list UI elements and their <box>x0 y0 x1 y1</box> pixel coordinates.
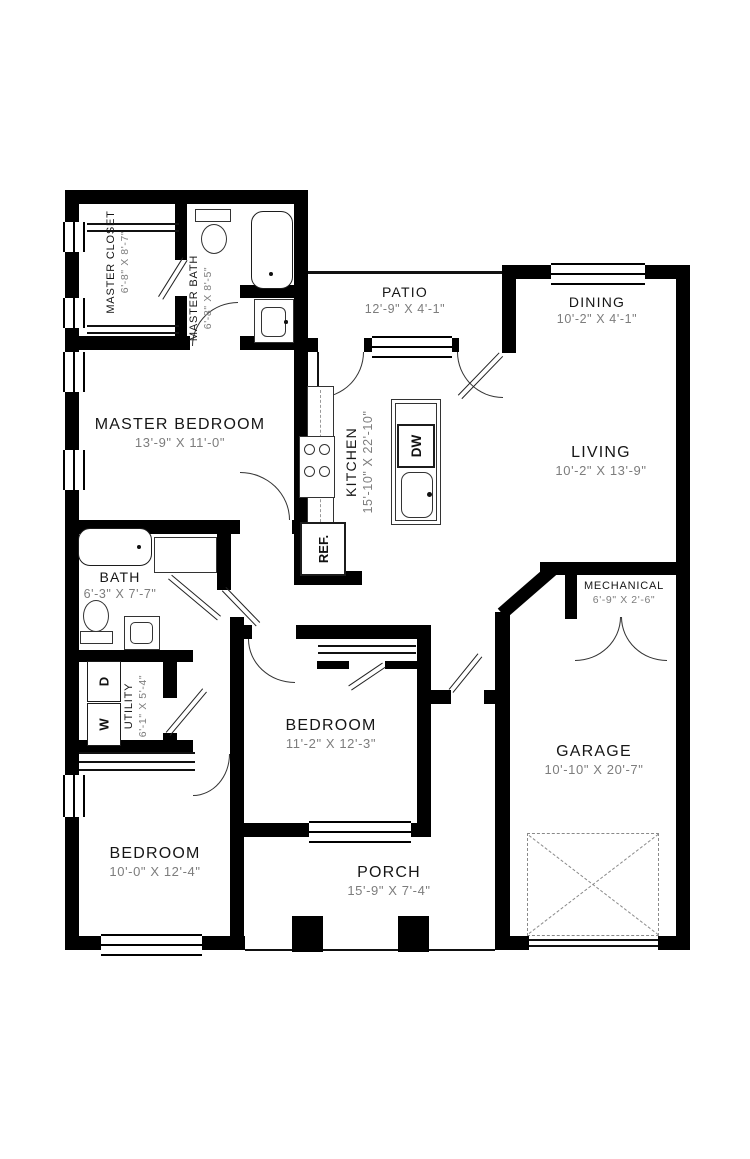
sink-basin <box>130 622 153 644</box>
wall <box>244 625 252 639</box>
door-leaf <box>158 257 187 299</box>
door-arc <box>575 617 621 661</box>
porch-post <box>398 916 429 952</box>
door-arc <box>240 472 290 520</box>
wall <box>230 617 244 950</box>
wall <box>65 190 308 204</box>
door-leaf <box>168 575 221 621</box>
wall <box>676 265 690 950</box>
room-label-patio: PATIO12'-9" X 4'-1" <box>335 284 475 317</box>
closet-shelf <box>79 752 195 754</box>
dishwasher-label: DW <box>407 429 425 463</box>
window <box>101 934 202 956</box>
sink-basin <box>261 307 286 337</box>
window <box>63 352 85 392</box>
tub-drain <box>137 545 141 549</box>
wall <box>540 562 676 575</box>
room-label-living: LIVING10'-2" X 13'-9" <box>516 443 686 479</box>
closet-shelf <box>318 645 416 647</box>
faucet <box>284 320 288 324</box>
room-label-porch: PORCH15'-9" X 7'-4" <box>309 863 469 899</box>
room-label-utility: UTILITY6'-1" X 5'-4" <box>123 664 153 748</box>
wall <box>294 190 308 348</box>
dryer-label: D <box>97 672 112 692</box>
wall <box>230 823 311 837</box>
room-label-garage: GARAGE10'-10" X 20'-7" <box>509 742 679 778</box>
sliding-door <box>372 336 452 358</box>
stove-burner <box>304 444 315 455</box>
window <box>63 775 85 817</box>
room-label-mechanical: MECHANICAL6'-9" X 2'-6" <box>564 580 684 607</box>
wall <box>658 936 690 950</box>
room-label-kitchen: KITCHEN15'-10" X 22'-10" <box>343 392 381 532</box>
wall <box>217 534 231 590</box>
wall <box>175 296 187 336</box>
room-label-bedroom-3: BEDROOM10'-0" X 12'-4" <box>75 844 235 880</box>
closet-shelf <box>79 769 195 771</box>
room-label-master-bedroom: MASTER BEDROOM13'-9" X 11'-0" <box>80 415 280 451</box>
tub-drain <box>269 272 273 276</box>
closet-shelf <box>79 761 195 763</box>
wall <box>417 625 431 837</box>
wall <box>317 661 349 669</box>
window <box>63 298 85 328</box>
wall <box>417 690 451 704</box>
wall <box>484 690 495 704</box>
window <box>551 263 645 285</box>
window <box>309 821 411 843</box>
refrigerator-label: REF. <box>314 527 332 571</box>
door-arc <box>193 754 230 796</box>
stove-burner <box>319 444 330 455</box>
room-label-master-bath: MASTER BATH6'-8" X 8'-5" <box>188 242 222 354</box>
wall <box>175 204 187 260</box>
toilet-tank <box>195 209 231 222</box>
toilet-tank <box>80 631 113 644</box>
wall <box>65 336 190 350</box>
porch-edge-line <box>245 949 495 951</box>
room-label-dining: DINING10'-2" X 4'-1" <box>522 294 672 327</box>
wall <box>409 823 431 837</box>
wall <box>296 625 417 639</box>
garage-door-line <box>529 939 658 941</box>
faucet <box>427 492 432 497</box>
angled-wall <box>498 563 559 619</box>
door-arc <box>621 617 667 661</box>
floor-plan: REF. DW D W MASTER CLOSET6'-8" X 8'-7" M… <box>0 0 750 1159</box>
window <box>63 222 85 252</box>
door-leaf <box>348 663 385 691</box>
room-label-bedroom-2: BEDROOM11'-2" X 12'-3" <box>251 716 411 752</box>
linen-closet <box>154 537 217 573</box>
stove-burner <box>304 466 315 477</box>
bathtub <box>251 211 293 289</box>
wall <box>495 936 529 950</box>
door-leaf <box>449 653 483 693</box>
toilet-bowl <box>83 600 109 632</box>
wall <box>495 612 510 950</box>
stove-burner <box>319 466 330 477</box>
wall <box>200 936 245 950</box>
room-label-master-closet: MASTER CLOSET6'-8" X 8'-7" <box>105 204 139 320</box>
porch-post <box>292 916 323 952</box>
wall <box>65 936 105 950</box>
room-label-bath: BATH6'-3" X 7'-7" <box>70 569 170 602</box>
wall <box>385 661 417 669</box>
patio-edge-line <box>308 271 504 274</box>
closet-shelf <box>87 332 179 334</box>
window <box>63 450 85 490</box>
wall <box>163 660 177 698</box>
door-arc <box>248 639 295 683</box>
closet-shelf <box>318 652 416 654</box>
washer-label: W <box>97 715 112 735</box>
garage-door-line <box>529 945 658 947</box>
closet-shelf <box>87 325 179 327</box>
